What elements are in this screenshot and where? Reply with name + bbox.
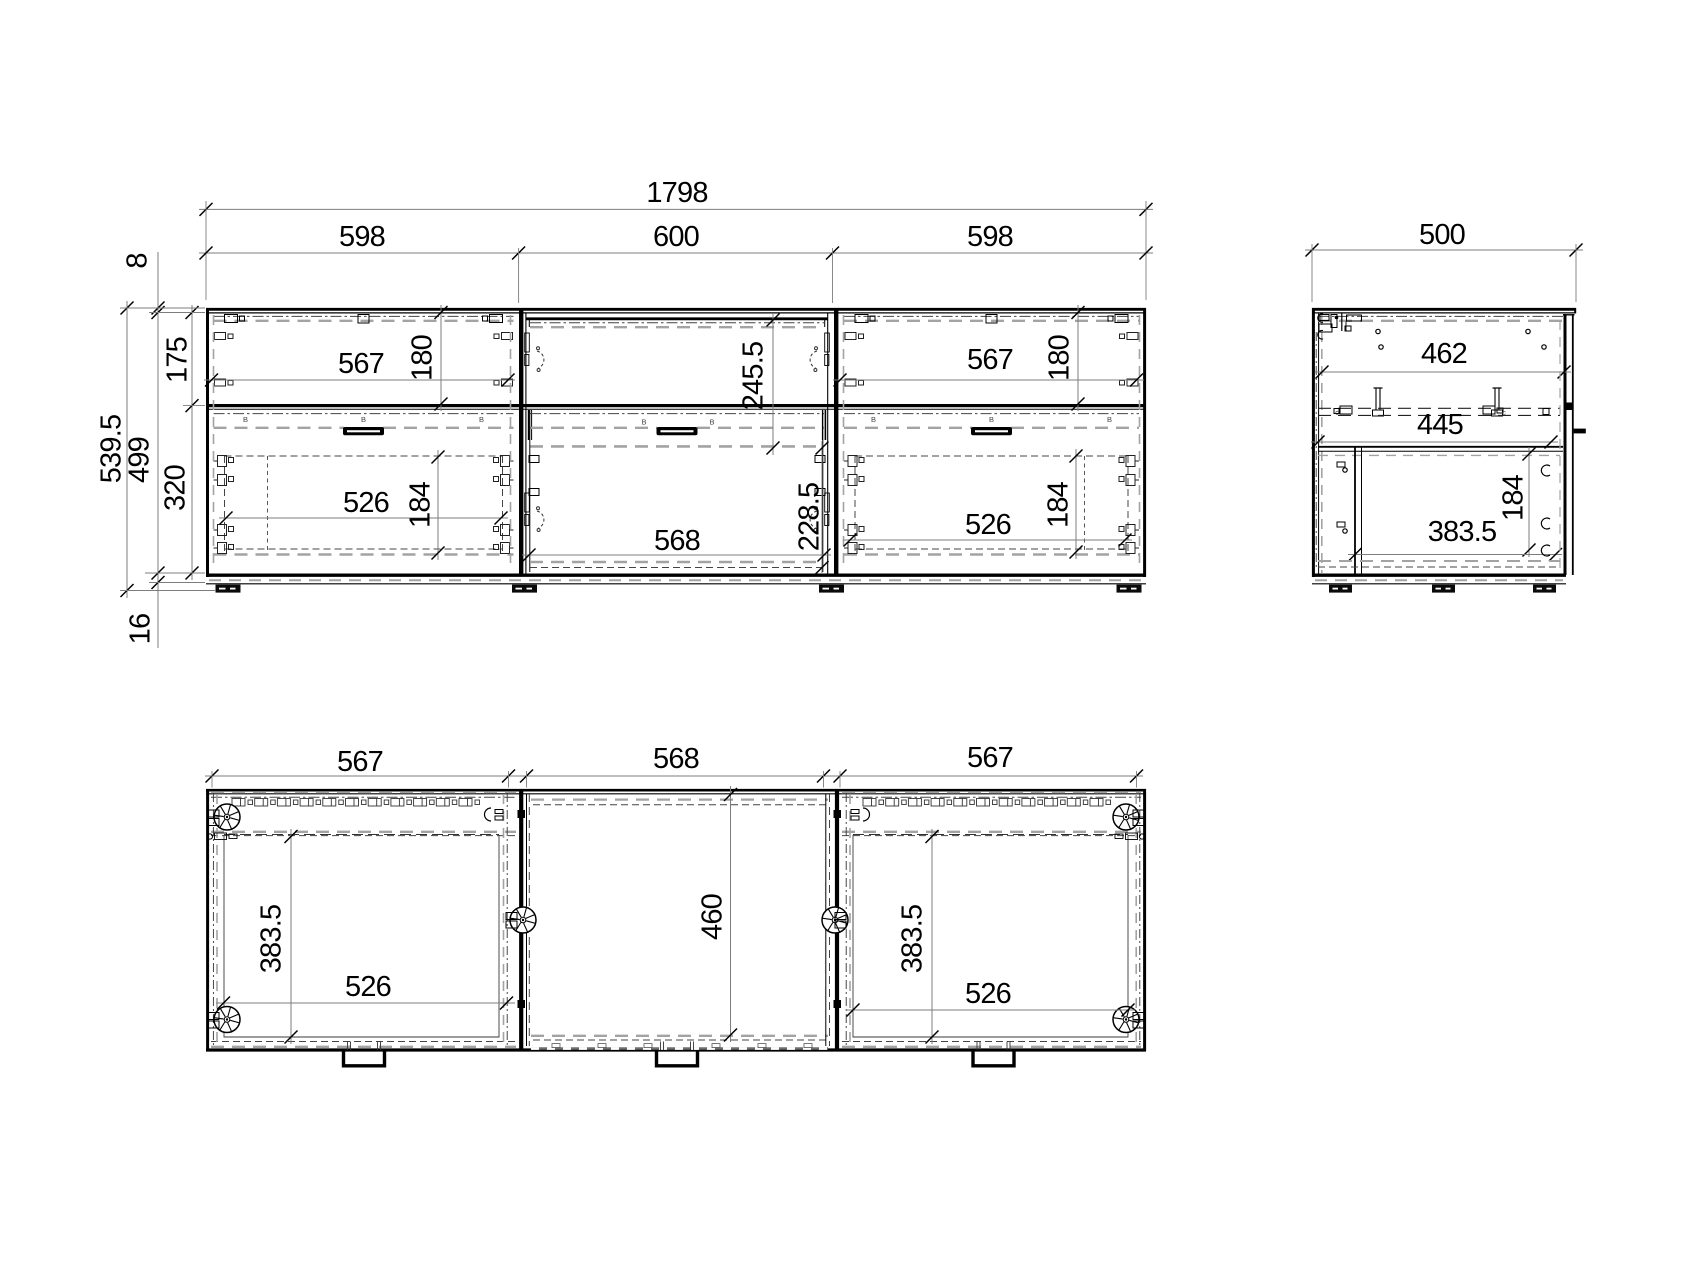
svg-text:184: 184 (1498, 474, 1530, 521)
svg-text:c: c (1502, 408, 1506, 417)
svg-text:462: 462 (1421, 338, 1467, 370)
svg-text:598: 598 (967, 221, 1013, 253)
svg-text:500: 500 (1419, 219, 1465, 251)
svg-text:598: 598 (339, 221, 385, 253)
svg-text:460: 460 (697, 894, 729, 940)
svg-text:526: 526 (965, 978, 1011, 1010)
svg-text:228.5: 228.5 (794, 483, 826, 552)
svg-text:B: B (871, 415, 876, 424)
svg-text:499: 499 (124, 437, 156, 483)
svg-text:567: 567 (338, 348, 384, 380)
svg-text:175: 175 (162, 337, 194, 383)
svg-text:184: 184 (405, 481, 437, 528)
svg-text:567: 567 (337, 746, 383, 778)
svg-text:526: 526 (345, 971, 391, 1003)
svg-text:B: B (1107, 415, 1112, 424)
svg-text:B: B (361, 415, 366, 424)
svg-text:180: 180 (407, 335, 439, 381)
svg-text:445: 445 (1417, 409, 1463, 441)
svg-text:383.5: 383.5 (897, 905, 929, 974)
svg-text:180: 180 (1044, 335, 1076, 381)
svg-text:568: 568 (653, 743, 699, 775)
svg-text:c: c (1335, 408, 1339, 417)
svg-text:568: 568 (654, 525, 700, 557)
svg-text:567: 567 (967, 742, 1013, 774)
svg-text:383.5: 383.5 (1428, 516, 1497, 548)
svg-text:526: 526 (343, 487, 389, 519)
svg-text:567: 567 (967, 344, 1013, 376)
svg-text:B: B (641, 418, 646, 427)
svg-text:16: 16 (125, 614, 157, 645)
svg-text:B: B (989, 415, 994, 424)
svg-text:1798: 1798 (646, 177, 707, 209)
svg-text:526: 526 (965, 509, 1011, 541)
svg-text:600: 600 (653, 221, 699, 253)
svg-text:B: B (709, 418, 714, 427)
svg-text:245.5: 245.5 (738, 342, 770, 411)
svg-text:383.5: 383.5 (256, 905, 288, 974)
svg-text:B: B (479, 415, 484, 424)
svg-text:184: 184 (1043, 481, 1075, 528)
svg-text:8: 8 (122, 253, 154, 268)
svg-text:320: 320 (160, 465, 192, 511)
svg-text:B: B (243, 415, 248, 424)
